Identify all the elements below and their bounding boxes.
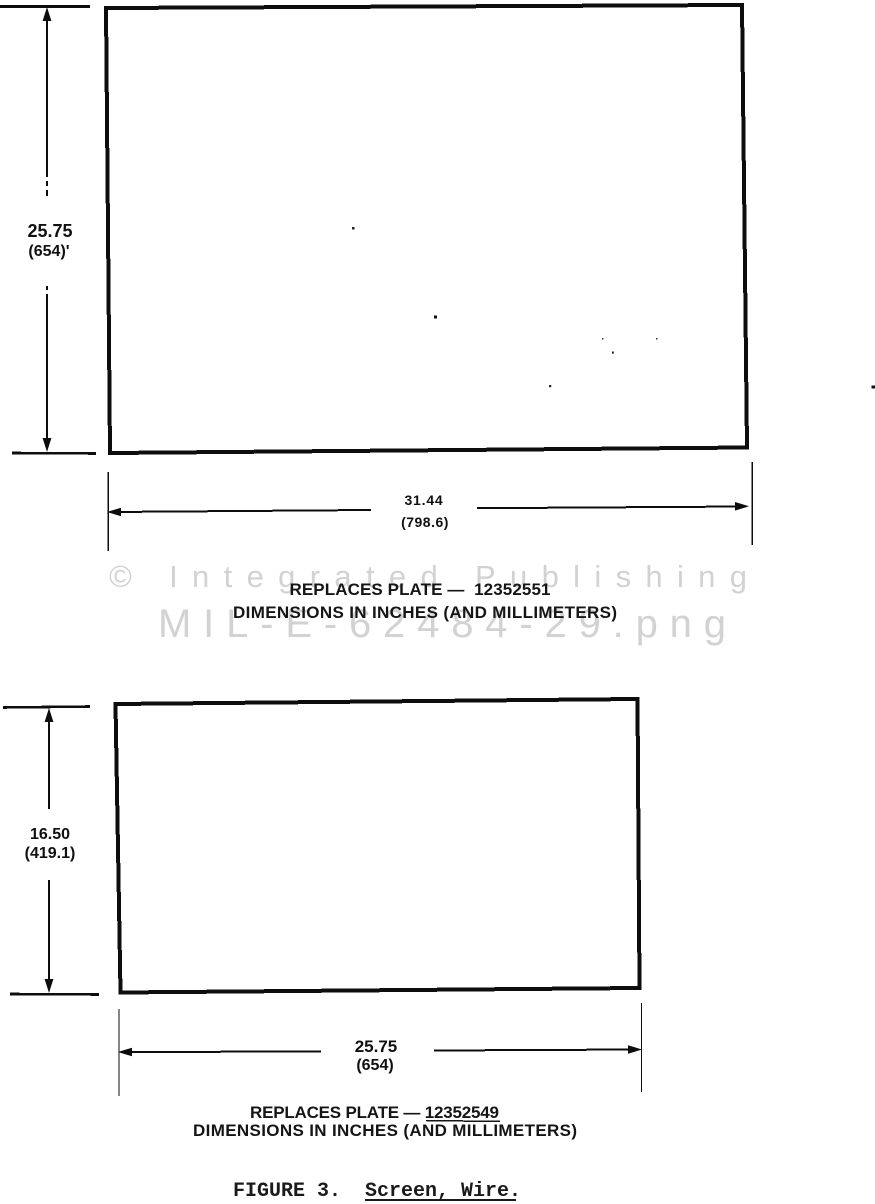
svg-text:REPLACES PLATE — 12352549: REPLACES PLATE — 12352549 [250, 1103, 499, 1122]
svg-text:(654)': (654)' [28, 243, 69, 260]
svg-text:(798.6): (798.6) [401, 514, 449, 530]
svg-text:(419.1): (419.1) [25, 845, 76, 862]
svg-text:25.75: 25.75 [27, 221, 72, 241]
svg-text:DIMENSIONS IN INCHES (AND MILL: DIMENSIONS IN INCHES (AND MILLIMETERS) [193, 1121, 577, 1140]
svg-text:31.44: 31.44 [404, 492, 443, 508]
svg-text:(654): (654) [356, 1057, 393, 1074]
svg-text:REPLACES PLATE — 12352551: REPLACES PLATE — 12352551 [290, 580, 551, 599]
svg-text:25.75: 25.75 [355, 1037, 398, 1056]
svg-text:DIMENSIONS IN INCHES (AND MILL: DIMENSIONS IN INCHES (AND MILLIMETERS) [233, 603, 617, 622]
svg-text:16.50: 16.50 [30, 826, 70, 843]
